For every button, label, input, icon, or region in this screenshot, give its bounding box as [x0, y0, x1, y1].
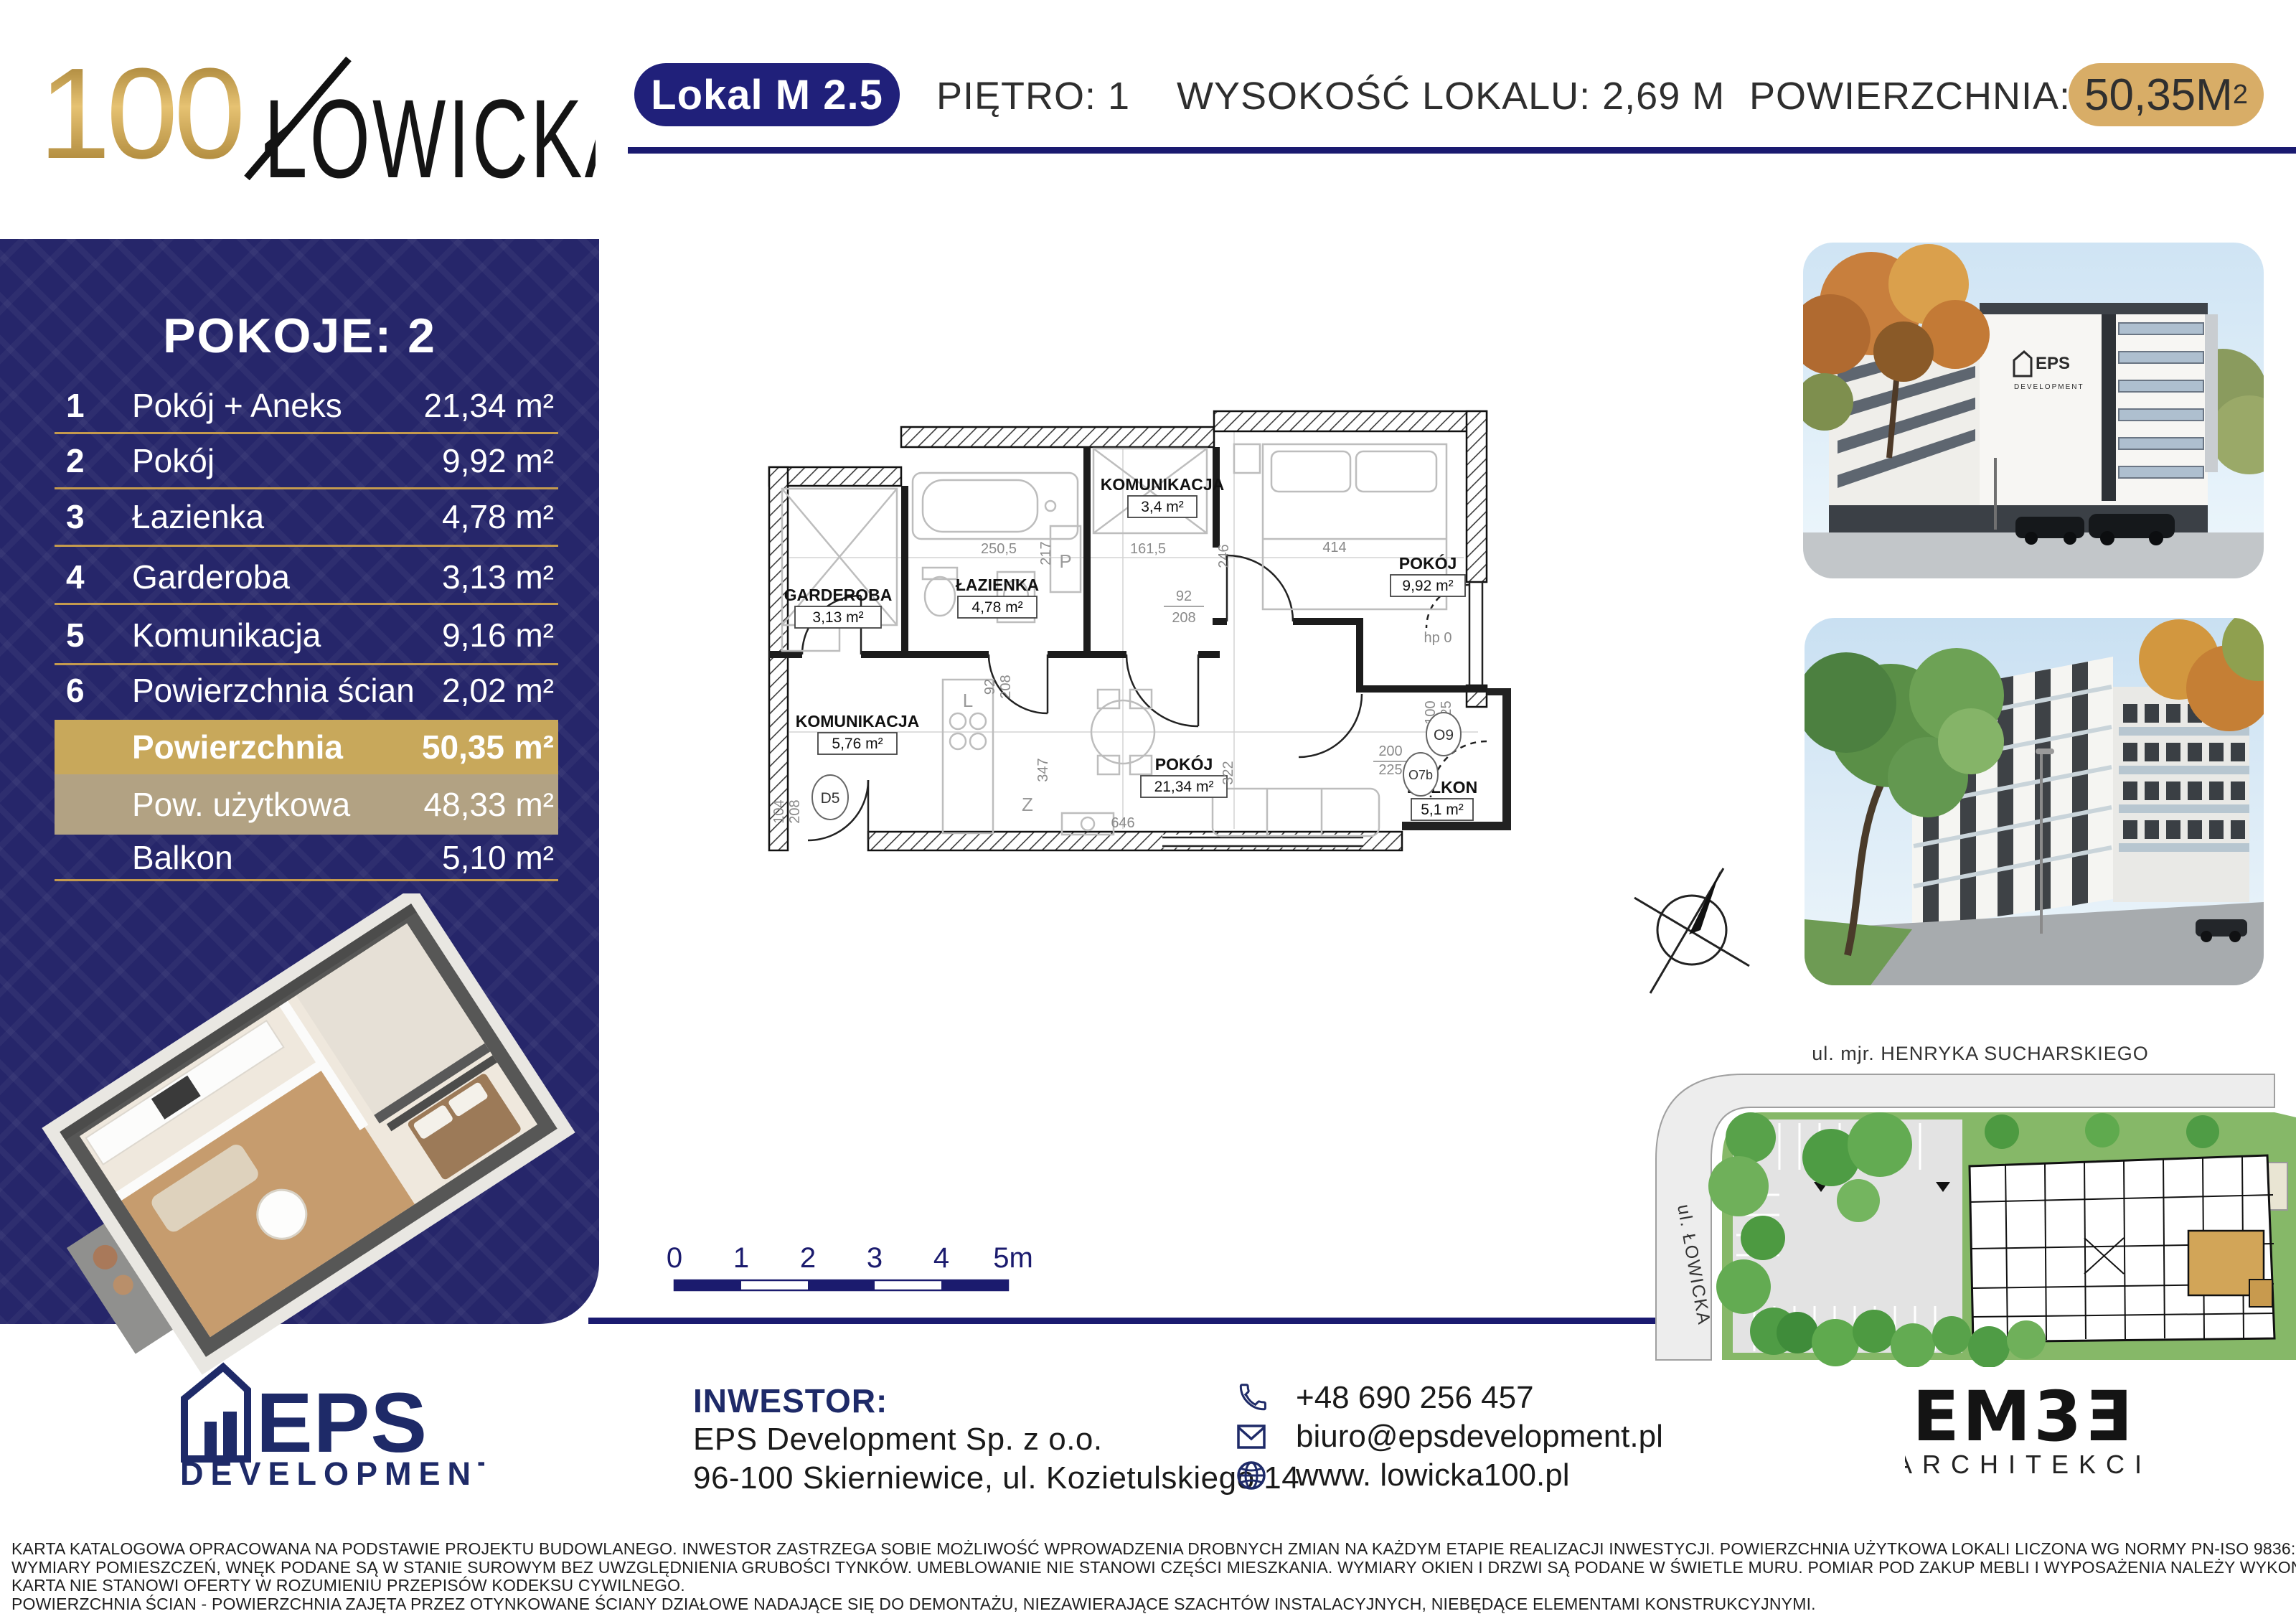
room-area: 2,02 m² — [442, 671, 558, 710]
plan-room-name: ŁAZIENKA — [956, 576, 1039, 594]
room-number: 6 — [55, 671, 122, 710]
embe-logo-text: EM3Ǝ — [1912, 1381, 2134, 1457]
marker-door: D5 — [821, 790, 840, 807]
phone-number: +48 690 256 457 — [1296, 1380, 1534, 1416]
plan-room-area: 21,34 m² — [1154, 779, 1214, 795]
plan-room-area: 3,4 m² — [1141, 499, 1184, 515]
summary-label: Powierzchnia — [55, 728, 422, 766]
room-area: 21,34 m² — [423, 386, 558, 425]
dim-label: 200 — [1378, 743, 1402, 759]
email-address: biuro@epsdevelopment.pl — [1296, 1419, 1663, 1455]
embe-architekci-logo: EM3Ǝ ARCHITEKCI — [1905, 1381, 2142, 1482]
marker-dishwasher: Z — [1022, 794, 1033, 815]
scale-label: 1 — [733, 1242, 749, 1274]
plan-room-name: POKÓJ — [1155, 754, 1213, 774]
scale-label: 4 — [933, 1242, 949, 1274]
globe-icon — [1234, 1458, 1269, 1493]
marker-window: O7b — [1408, 768, 1433, 782]
scale-label: 3 — [867, 1242, 883, 1274]
room-area: 9,16 m² — [442, 616, 558, 654]
scale-bar: 0 1 2 3 4 5m — [660, 1240, 1033, 1300]
brand-number: 100 — [39, 50, 241, 183]
apartment-3d-render — [7, 893, 613, 1403]
row-divider — [55, 487, 558, 489]
unit-badge-label: Lokal M 2.5 — [651, 71, 883, 119]
sidebar-panel: POKOJE: 2 1 Pokój + Aneks 21,34 m² 2 Pok… — [0, 239, 599, 1324]
dim-label: 322 — [1220, 761, 1236, 784]
eps-development-logo: EPS DEVELOPMENT — [176, 1358, 484, 1491]
plan-room-name: POKÓJ — [1399, 553, 1457, 573]
area-badge-value: 50,35M — [2084, 70, 2233, 121]
dim-label: hp 0 — [1424, 630, 1452, 646]
height-label: WYSOKOŚĆ LOKALU: 2,69 M — [1177, 74, 1725, 118]
room-label: Łazienka — [122, 497, 442, 536]
dim-label: 246 — [1216, 544, 1232, 568]
disclaimer-line: POWIERZCHNIA ŚCIAN - POWIERZCHNIA ZAJĘTA… — [11, 1595, 2286, 1614]
dim-label: 225 — [1378, 762, 1402, 778]
investor-label: INWESTOR: — [693, 1381, 888, 1420]
disclaimer-line: WYMIARY POMIESZCZEŃ, WNĘK PODANE SĄ W ST… — [11, 1559, 2286, 1577]
dim-label: 217 — [1038, 541, 1054, 565]
street-name-top: ul. mjr. HENRYKA SUCHARSKIEGO — [1812, 1043, 2149, 1064]
compass-north-icon — [1629, 858, 1758, 1002]
website-url: www. lowicka100.pl — [1296, 1458, 1570, 1493]
marker-fridge: L — [963, 690, 973, 711]
dim-label: 92 — [982, 679, 998, 695]
room-row-5: 5 Komunikacja 9,16 m² — [55, 610, 558, 660]
row-divider — [55, 545, 558, 547]
header-divider — [628, 147, 2296, 154]
room-row-4: 4 Garderoba 3,13 m² — [55, 552, 558, 602]
plan-room-area: 3,13 m² — [812, 609, 863, 626]
photo-building-2 — [1805, 618, 2264, 985]
unit-badge: Lokal M 2.5 — [634, 63, 900, 126]
email-icon — [1234, 1419, 1269, 1454]
summary-label: Pow. użytkowa — [55, 785, 423, 824]
row-divider — [55, 879, 558, 881]
room-area: 9,92 m² — [442, 441, 558, 480]
site-plan: ul. mjr. HENRYKA SUCHARSKIEGO ul. ŁOWICK… — [1643, 1023, 2296, 1367]
dim-label: 104 — [771, 799, 787, 823]
row-divider — [55, 432, 558, 434]
disclaimer-line: KARTA KATALOGOWA OPRACOWANA NA PODSTAWIE… — [11, 1540, 2286, 1559]
room-area: 4,78 m² — [442, 497, 558, 536]
room-label: Pokój + Aneks — [122, 386, 423, 425]
floor-plan: GARDEROBA ŁAZIENKA KOMUNIKACJA POKÓJ KOM… — [761, 405, 1535, 872]
eps-logo-subtext: DEVELOPMENT — [180, 1455, 484, 1491]
room-label: Komunikacja — [122, 616, 442, 654]
brand-logo: 100 ŁOWICKA — [36, 50, 596, 183]
plan-dimensions: 250,5 217 161,5 246 414 92 208 92 208 34… — [771, 540, 1454, 831]
plan-markers: D5 O9 O7b P L Z — [812, 550, 1461, 820]
scale-label: 0 — [667, 1242, 682, 1274]
plan-room-name: GARDEROBA — [784, 586, 893, 604]
room-number: 2 — [55, 441, 122, 480]
svg-text:EPS: EPS — [2036, 354, 2070, 373]
room-row-3: 3 Łazienka 4,78 m² — [55, 492, 558, 542]
plan-room-area: 9,92 m² — [1402, 578, 1453, 594]
brand-name: ŁOWICKA — [264, 78, 596, 183]
room-number: 5 — [55, 616, 122, 654]
room-row-1: 1 Pokój + Aneks 21,34 m² — [55, 380, 558, 431]
furniture — [782, 444, 1446, 836]
dim-label: 208 — [787, 799, 803, 823]
room-row-6: 6 Powierzchnia ścian 2,02 m² — [55, 665, 558, 715]
plan-room-name: KOMUNIKACJA — [1101, 475, 1225, 494]
scale-label: 2 — [800, 1242, 816, 1274]
dim-label: 250,5 — [981, 541, 1017, 557]
room-row-2: 2 Pokój 9,92 m² — [55, 436, 558, 486]
embe-logo-subtext: ARCHITEKCI — [1905, 1450, 2142, 1479]
plan-room-area: 5,76 m² — [832, 736, 883, 752]
contact-phone-row: +48 690 256 457 — [1234, 1379, 1534, 1417]
scale-label: 5m — [993, 1242, 1033, 1274]
investor-address: 96-100 Skierniewice, ul. Kozietulskiego … — [693, 1460, 1299, 1496]
contact-website-row: www. lowicka100.pl — [1234, 1457, 1570, 1494]
site-building-footprint — [1970, 1155, 2287, 1342]
contact-email-row: biuro@epsdevelopment.pl — [1234, 1418, 1663, 1455]
area-badge: 50,35M2 — [2069, 63, 2264, 126]
plan-room-area: 5,1 m² — [1421, 802, 1464, 818]
area-label: POWIERZCHNIA: — [1749, 74, 2071, 118]
plan-room-area: 4,78 m² — [971, 599, 1022, 616]
room-label: Garderoba — [122, 558, 442, 596]
summary-usable-area: Pow. użytkowa 48,33 m² — [55, 774, 558, 835]
rooms-count-title: POKOJE: 2 — [0, 308, 599, 364]
room-number: 3 — [55, 497, 122, 536]
floor-label: PIĘTRO: 1 — [936, 74, 1130, 118]
marker-shaft: P — [1059, 550, 1071, 572]
dim-label: 347 — [1035, 758, 1051, 782]
marker-window: O9 — [1434, 727, 1454, 743]
scale-bar-labels: 0 1 2 3 4 5m — [667, 1242, 1033, 1274]
summary-balcony: Balkon 5,10 m² — [55, 832, 558, 883]
room-area: 3,13 m² — [442, 558, 558, 596]
investor-name: EPS Development Sp. z o.o. — [693, 1422, 1103, 1458]
dim-label: 414 — [1322, 540, 1346, 555]
room-label: Powierzchnia ścian — [122, 671, 442, 710]
photo-building-1: EPS DEVELOPMENT — [1803, 243, 2264, 578]
dim-label: 646 — [1111, 815, 1134, 831]
summary-total-area: Powierzchnia 50,35 m² — [55, 720, 558, 774]
phone-icon — [1234, 1381, 1269, 1415]
dim-label: 208 — [998, 675, 1014, 698]
catalog-card-page: 100 ŁOWICKA Lokal M 2.5 PIĘTRO: 1 WYSOKO… — [0, 0, 2296, 1624]
room-number: 1 — [55, 386, 122, 425]
dim-label: 92 — [1176, 588, 1192, 604]
disclaimer-line: KARTA NIE STANOWI OFERTY W ROZUMIENIU PR… — [11, 1577, 2286, 1595]
row-divider — [55, 603, 558, 605]
eps-building-icon — [181, 1367, 251, 1459]
plan-room-name: KOMUNIKACJA — [796, 712, 920, 731]
content-footer-divider — [588, 1318, 1711, 1324]
summary-area: 5,10 m² — [442, 838, 558, 877]
disclaimer: KARTA KATALOGOWA OPRACOWANA NA PODSTAWIE… — [11, 1540, 2286, 1613]
room-label: Pokój — [122, 441, 442, 480]
summary-label: Balkon — [55, 838, 442, 877]
dim-label: 161,5 — [1130, 541, 1166, 557]
summary-area: 48,33 m² — [423, 785, 558, 824]
svg-text:DEVELOPMENT: DEVELOPMENT — [2014, 383, 2084, 391]
room-number: 4 — [55, 558, 122, 596]
summary-area: 50,35 m² — [422, 728, 558, 766]
dim-label: 208 — [1172, 610, 1195, 626]
